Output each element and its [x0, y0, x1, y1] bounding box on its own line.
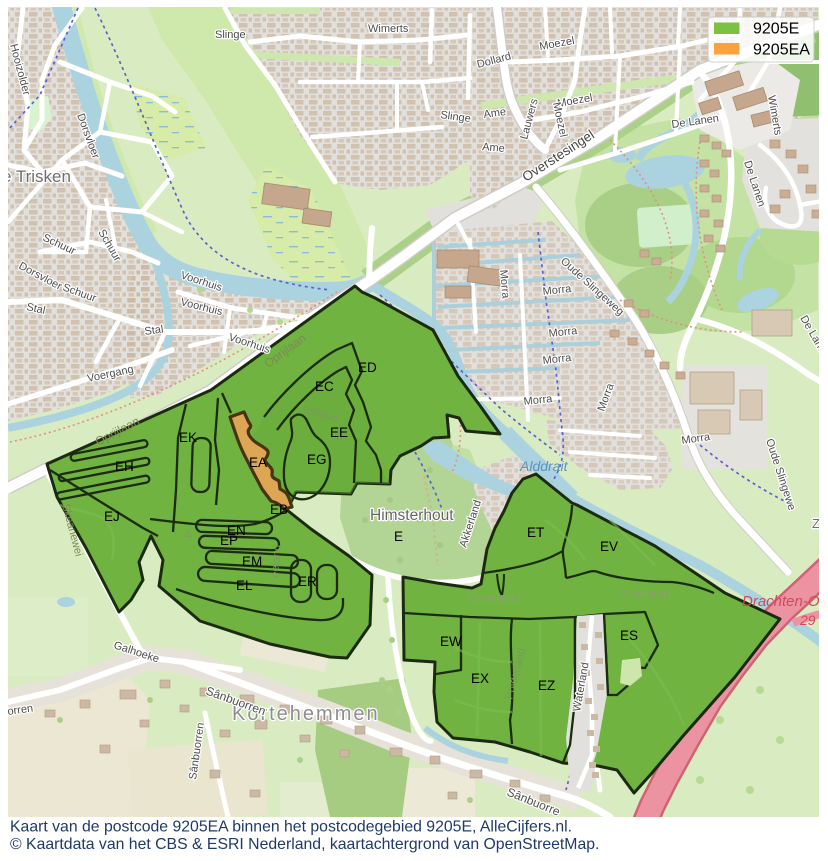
svg-text:Morra: Morra	[497, 269, 512, 300]
svg-text:EV: EV	[600, 539, 618, 554]
svg-text:EX: EX	[471, 671, 489, 686]
svg-text:Alddrait: Alddrait	[519, 458, 569, 474]
svg-text:29: 29	[799, 612, 816, 628]
svg-text:Kaart van de postcode 9205EA b: Kaart van de postcode 9205EA binnen het …	[10, 819, 572, 836]
svg-text:EK: EK	[179, 430, 197, 445]
svg-text:Z: Z	[812, 516, 820, 531]
svg-text:EP: EP	[220, 533, 238, 548]
svg-text:Grasland: Grasland	[468, 590, 521, 605]
svg-text:© Kaartdata van het CBS & ESRI: © Kaartdata van het CBS & ESRI Nederland…	[10, 836, 599, 853]
svg-text:EW: EW	[440, 634, 462, 649]
svg-text:EM: EM	[242, 554, 262, 569]
svg-text:E: E	[394, 529, 403, 544]
svg-text:EH: EH	[115, 459, 134, 474]
svg-text:Slinge: Slinge	[215, 29, 246, 41]
svg-text:Himsterhout: Himsterhout	[370, 507, 454, 524]
svg-text:EL: EL	[236, 578, 253, 593]
svg-text:ET: ET	[527, 525, 544, 540]
svg-text:ES: ES	[620, 628, 638, 643]
svg-text:EE: EE	[330, 425, 348, 440]
svg-text:EG: EG	[307, 452, 327, 467]
svg-text:EC: EC	[315, 379, 334, 394]
svg-text:Wimerts: Wimerts	[368, 23, 409, 35]
svg-text:Ame: Ame	[482, 141, 506, 155]
svg-text:ER: ER	[298, 574, 317, 589]
svg-text:9205EA: 9205EA	[753, 42, 810, 59]
svg-text:ED: ED	[358, 360, 377, 375]
svg-text:Drachten-O: Drachten-O	[742, 593, 820, 610]
svg-text:9205E: 9205E	[753, 21, 799, 38]
svg-text:e Trisken: e Trisken	[2, 167, 71, 186]
svg-text:Grasland: Grasland	[618, 586, 671, 601]
svg-text:EB: EB	[270, 502, 288, 517]
svg-text:EZ: EZ	[538, 678, 555, 693]
svg-text:EJ: EJ	[104, 509, 120, 524]
svg-text:EA: EA	[249, 455, 267, 470]
